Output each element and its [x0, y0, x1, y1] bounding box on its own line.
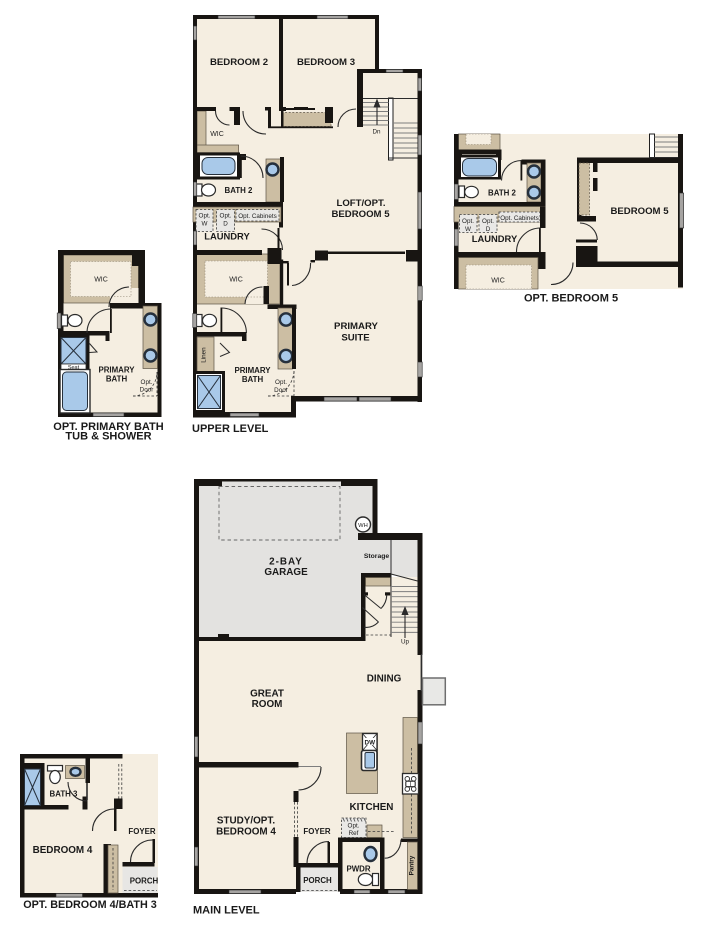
svg-text:Storage: Storage	[364, 553, 390, 560]
svg-text:D: D	[223, 221, 228, 228]
svg-text:BEDROOM 4: BEDROOM 4	[33, 845, 93, 856]
svg-text:Opt.: Opt.	[482, 218, 494, 225]
svg-text:TUB & SHOWER: TUB & SHOWER	[65, 431, 151, 443]
svg-text:PRIMARY: PRIMARY	[334, 321, 378, 332]
svg-text:SUITE: SUITE	[341, 333, 370, 344]
svg-text:STUDY/OPT.: STUDY/OPT.	[217, 816, 275, 827]
svg-text:BEDROOM 5: BEDROOM 5	[331, 209, 390, 220]
svg-text:W: W	[202, 221, 208, 228]
svg-text:Opt.: Opt.	[199, 213, 211, 220]
svg-text:GREAT: GREAT	[250, 689, 284, 700]
svg-text:BEDROOM 4: BEDROOM 4	[216, 827, 276, 838]
svg-text:WIC: WIC	[94, 277, 108, 284]
svg-text:Door: Door	[274, 387, 288, 394]
svg-text:DW: DW	[365, 740, 376, 747]
svg-text:BATH: BATH	[106, 375, 128, 384]
svg-text:Door: Door	[140, 387, 154, 394]
svg-text:Dn: Dn	[372, 129, 381, 136]
svg-text:LOFT/OPT.: LOFT/OPT.	[336, 198, 385, 209]
svg-text:GARAGE: GARAGE	[264, 567, 308, 578]
svg-text:KITCHEN: KITCHEN	[350, 802, 394, 813]
svg-text:DINING: DINING	[367, 674, 402, 685]
svg-text:Up: Up	[401, 639, 410, 646]
svg-text:Opt. Cabinets: Opt. Cabinets	[238, 213, 277, 220]
svg-text:Ref: Ref	[349, 830, 359, 837]
svg-text:FOYER: FOYER	[303, 827, 330, 836]
svg-text:WIC: WIC	[491, 278, 505, 285]
svg-text:BEDROOM 5: BEDROOM 5	[610, 206, 669, 217]
svg-text:PWDR: PWDR	[346, 865, 370, 874]
svg-text:W: W	[465, 226, 471, 233]
svg-text:PRIMARY: PRIMARY	[98, 366, 135, 375]
svg-text:OPT. BEDROOM 5: OPT. BEDROOM 5	[524, 293, 618, 305]
svg-text:PORCH: PORCH	[303, 876, 332, 885]
svg-text:WH: WH	[358, 523, 368, 529]
svg-text:BATH 2: BATH 2	[225, 186, 254, 195]
svg-text:Opt. Cabinets: Opt. Cabinets	[500, 215, 539, 222]
svg-text:MAIN LEVEL: MAIN LEVEL	[193, 905, 260, 917]
svg-text:Opt.: Opt.	[141, 379, 153, 386]
svg-text:BATH: BATH	[242, 375, 264, 384]
svg-text:WIC: WIC	[229, 277, 243, 284]
svg-text:BEDROOM 2: BEDROOM 2	[210, 57, 268, 68]
svg-text:D: D	[486, 226, 491, 233]
svg-text:BATH 2: BATH 2	[488, 189, 517, 198]
svg-text:OPT. BEDROOM 4/BATH 3: OPT. BEDROOM 4/BATH 3	[23, 899, 157, 911]
svg-text:BATH 3: BATH 3	[50, 790, 79, 799]
svg-text:Opt.: Opt.	[275, 379, 287, 386]
svg-text:ROOM: ROOM	[252, 699, 283, 710]
svg-text:Opt.: Opt.	[462, 218, 474, 225]
svg-text:WIC: WIC	[210, 131, 224, 138]
svg-text:Opt.: Opt.	[348, 823, 360, 830]
svg-text:Opt.: Opt.	[220, 213, 232, 220]
svg-text:2-BAY: 2-BAY	[269, 557, 303, 568]
svg-text:UPPER LEVEL: UPPER LEVEL	[192, 423, 269, 435]
svg-text:PORCH: PORCH	[130, 877, 159, 886]
svg-text:LAUNDRY: LAUNDRY	[472, 233, 518, 244]
svg-text:BEDROOM 3: BEDROOM 3	[297, 57, 355, 68]
svg-text:Pantry: Pantry	[409, 855, 416, 875]
svg-text:FOYER: FOYER	[128, 827, 155, 836]
svg-text:PRIMARY: PRIMARY	[234, 366, 271, 375]
svg-text:Linen: Linen	[201, 347, 208, 363]
svg-text:LAUNDRY: LAUNDRY	[204, 231, 250, 242]
